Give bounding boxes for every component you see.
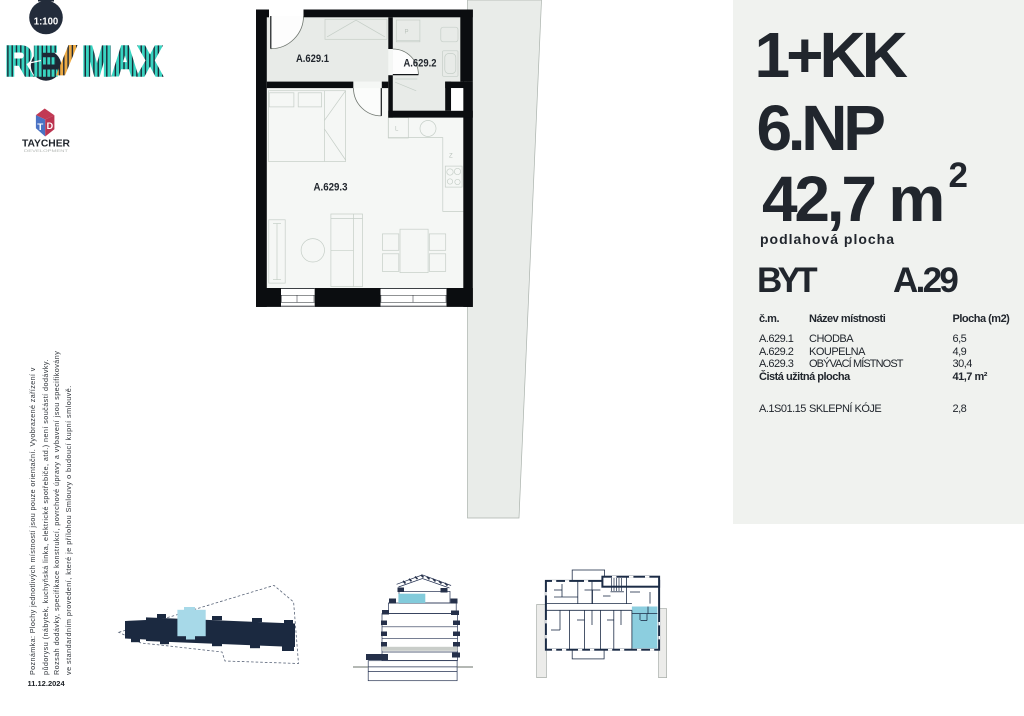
svg-text:A.629.1: A.629.1	[296, 53, 329, 65]
svg-text:A.629.3: A.629.3	[314, 181, 348, 193]
svg-text:Z: Z	[449, 154, 453, 160]
svg-text:DEVELOPMENT: DEVELOPMENT	[24, 148, 69, 153]
svg-text:T: T	[37, 122, 44, 132]
svg-text:A.629.2: A.629.2	[404, 57, 437, 69]
svg-text:D: D	[47, 121, 54, 131]
svg-text:RE: RE	[5, 37, 58, 84]
svg-text:MAX: MAX	[82, 37, 162, 84]
svg-text:1:100: 1:100	[34, 15, 59, 27]
svg-text:P: P	[405, 30, 409, 36]
svg-text:N: N	[17, 54, 21, 60]
